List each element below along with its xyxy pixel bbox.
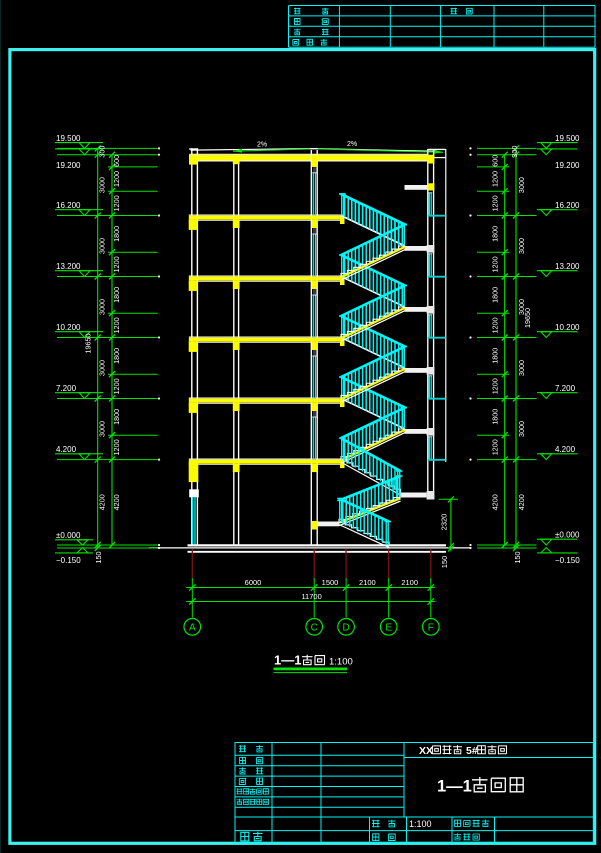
svg-text:1800: 1800 xyxy=(491,226,500,242)
svg-text:3000: 3000 xyxy=(517,177,526,193)
svg-text:6000: 6000 xyxy=(245,578,262,587)
svg-text:F: F xyxy=(428,622,434,633)
svg-text:1800: 1800 xyxy=(112,226,121,242)
svg-text:10.200: 10.200 xyxy=(555,323,580,332)
svg-text:2%: 2% xyxy=(347,141,357,148)
svg-text:4200: 4200 xyxy=(112,494,121,510)
svg-text:16.200: 16.200 xyxy=(555,201,580,210)
svg-text:1200: 1200 xyxy=(112,378,121,394)
svg-text:3000: 3000 xyxy=(98,421,107,437)
svg-text:1200: 1200 xyxy=(491,317,500,333)
svg-text:4200: 4200 xyxy=(517,494,526,510)
svg-text:−0.150: −0.150 xyxy=(555,556,580,565)
svg-text:300: 300 xyxy=(98,146,107,158)
svg-text:16.200: 16.200 xyxy=(56,201,81,210)
svg-text:2%: 2% xyxy=(257,142,267,149)
svg-text:13.200: 13.200 xyxy=(555,262,580,271)
svg-text:11700: 11700 xyxy=(301,592,321,601)
svg-text:1800: 1800 xyxy=(491,409,500,425)
svg-text:−0.150: −0.150 xyxy=(56,556,81,565)
svg-text:E: E xyxy=(385,622,392,633)
svg-text:1800: 1800 xyxy=(491,287,500,303)
svg-text:1200: 1200 xyxy=(112,439,121,455)
svg-text:XX: XX xyxy=(419,745,433,757)
svg-text:4200: 4200 xyxy=(491,494,500,510)
svg-text:300: 300 xyxy=(510,146,519,158)
svg-text:7.200: 7.200 xyxy=(56,384,77,393)
svg-text:3000: 3000 xyxy=(98,177,107,193)
svg-text:3000: 3000 xyxy=(98,238,107,254)
svg-text:2100: 2100 xyxy=(401,578,418,587)
svg-text:1800: 1800 xyxy=(112,348,121,364)
svg-text:150: 150 xyxy=(513,552,522,564)
svg-text:7.200: 7.200 xyxy=(555,384,576,393)
svg-text:3000: 3000 xyxy=(98,360,107,376)
svg-text:2320: 2320 xyxy=(439,514,448,531)
svg-text:1:100: 1:100 xyxy=(329,657,353,668)
svg-text:1200: 1200 xyxy=(112,171,121,187)
svg-text:4200: 4200 xyxy=(98,494,107,510)
svg-text:1200: 1200 xyxy=(112,256,121,272)
svg-text:19.200: 19.200 xyxy=(56,161,81,170)
svg-text:±0.000: ±0.000 xyxy=(56,531,81,540)
svg-text:1800: 1800 xyxy=(112,409,121,425)
svg-text:3000: 3000 xyxy=(517,360,526,376)
svg-text:±0.000: ±0.000 xyxy=(555,530,580,539)
svg-text:19.200: 19.200 xyxy=(555,161,580,170)
svg-text:1200: 1200 xyxy=(491,195,500,211)
svg-text:C: C xyxy=(311,622,318,633)
svg-text:19650: 19650 xyxy=(84,334,93,354)
svg-text:1200: 1200 xyxy=(491,256,500,272)
svg-text:13.200: 13.200 xyxy=(56,262,81,271)
svg-text:5#: 5# xyxy=(466,745,478,757)
svg-text:3000: 3000 xyxy=(517,238,526,254)
svg-text:3000: 3000 xyxy=(98,299,107,315)
svg-text:1200: 1200 xyxy=(112,317,121,333)
svg-text:19.500: 19.500 xyxy=(56,134,81,143)
svg-text:D: D xyxy=(342,622,349,633)
svg-text:3000: 3000 xyxy=(517,421,526,437)
svg-text:4.200: 4.200 xyxy=(555,445,576,454)
svg-text:600: 600 xyxy=(491,155,500,167)
svg-text:1:100: 1:100 xyxy=(409,819,432,829)
svg-text:600: 600 xyxy=(112,155,121,167)
svg-text:1500: 1500 xyxy=(322,578,339,587)
svg-text:1800: 1800 xyxy=(112,287,121,303)
svg-text:1200: 1200 xyxy=(491,439,500,455)
svg-text:10.200: 10.200 xyxy=(56,323,81,332)
svg-text:1200: 1200 xyxy=(112,195,121,211)
svg-text:150: 150 xyxy=(94,552,103,564)
svg-text:A: A xyxy=(189,622,196,633)
svg-text:4.200: 4.200 xyxy=(56,445,77,454)
svg-text:1800: 1800 xyxy=(491,348,500,364)
svg-text:1200: 1200 xyxy=(491,378,500,394)
svg-text:1200: 1200 xyxy=(491,171,500,187)
svg-text:1—1: 1—1 xyxy=(274,653,301,668)
svg-text:19.500: 19.500 xyxy=(555,134,580,143)
svg-text:1—1: 1—1 xyxy=(437,778,472,796)
svg-text:19650: 19650 xyxy=(523,308,532,328)
svg-text:150: 150 xyxy=(440,556,449,569)
svg-text:2100: 2100 xyxy=(359,578,376,587)
